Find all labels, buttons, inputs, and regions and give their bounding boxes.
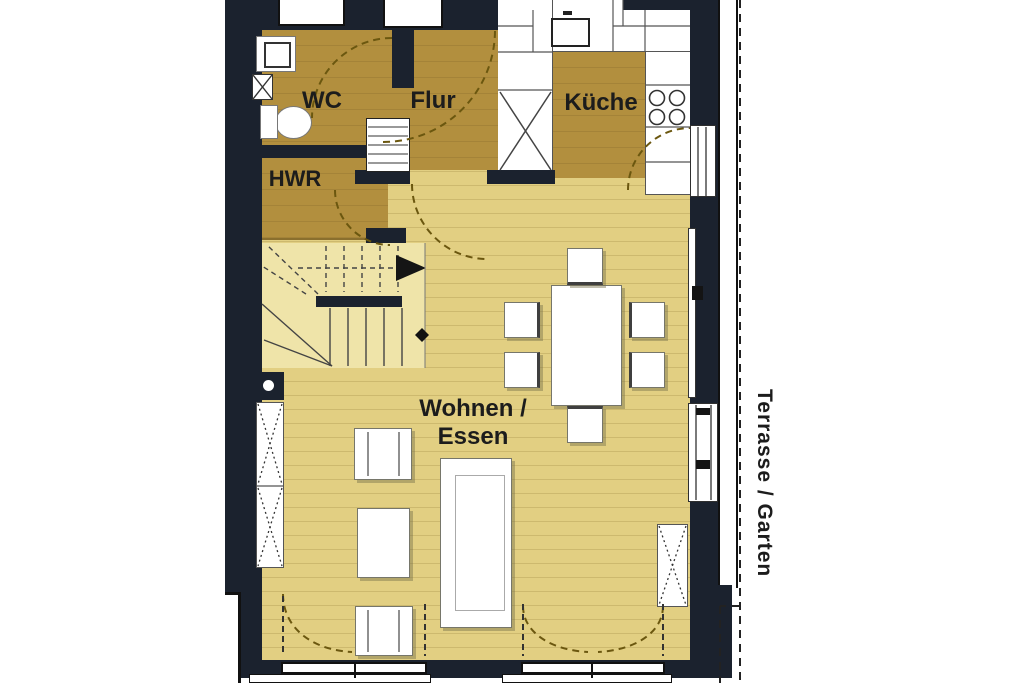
dining-window-handle: [692, 286, 703, 300]
stairs-diamond-marker: [415, 328, 429, 342]
wardrobe-shelf-lines: [368, 127, 408, 163]
terrace-boundary-line: [720, 0, 740, 683]
wohnen-line1: Wohnen /: [378, 395, 568, 423]
wohnen-line2: Essen: [378, 423, 568, 451]
door-jamb-lines: [283, 596, 663, 656]
terrace-garden-label: Terrasse / Garten: [752, 388, 776, 578]
counter-grid: [498, 0, 690, 162]
kitchen-cabinet-x: [500, 92, 551, 170]
room-label-wc: WC: [292, 87, 352, 115]
room-label-wohnen-essen: Wohnen / Essen: [378, 395, 568, 451]
armchair-armrest-lines: [368, 432, 399, 652]
floorplan-canvas: WC Flur Küche HWR Wohnen / Essen Terrass…: [0, 0, 1024, 683]
radiator-x: [253, 75, 272, 99]
stairs-up-arrow: [396, 255, 426, 281]
utility-door-arc: [335, 190, 390, 245]
terrace-door-right-arc2: [598, 606, 663, 652]
linework-overlay: [0, 0, 1024, 683]
stairs-linework: [262, 243, 429, 368]
stairs-cut-bar: [316, 296, 402, 307]
door-swing-arcs: [283, 30, 690, 652]
terrace-door-right-arc1: [523, 606, 588, 652]
entrance-door-arc: [383, 30, 495, 142]
stove-burners: [650, 91, 685, 125]
hall-living-door-arc: [412, 184, 487, 259]
room-label-flur: Flur: [400, 87, 466, 115]
room-label-kueche: Küche: [551, 89, 651, 117]
kitchen-linework: [498, 0, 690, 170]
terrace-door-handle-2: [696, 460, 710, 469]
kitchen-door-arc: [628, 128, 690, 190]
terrace-door-left-arc: [283, 594, 352, 652]
terrace-door-handle-1: [696, 408, 710, 415]
room-label-hwr: HWR: [263, 166, 327, 192]
